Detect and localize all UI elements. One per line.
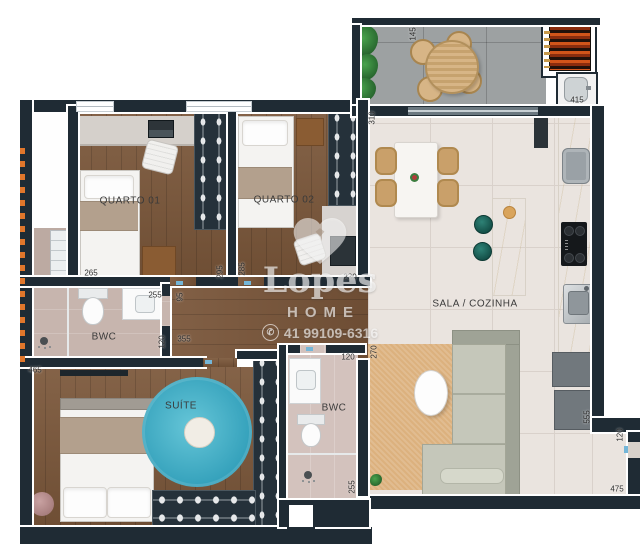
dim-label: 120 bbox=[616, 428, 625, 441]
balcony-round-table bbox=[425, 40, 479, 94]
heart-logo-icon bbox=[292, 218, 348, 264]
sofa-cushion bbox=[440, 468, 504, 484]
grill-niche bbox=[541, 18, 597, 78]
wall bbox=[237, 351, 285, 359]
door-hinge-mark bbox=[244, 281, 251, 285]
sink-basin bbox=[296, 370, 316, 390]
dim-label: 475 bbox=[610, 485, 623, 494]
room-label-suite: SUÍTE bbox=[165, 401, 197, 412]
room-label-quarto-01: QUARTO 01 bbox=[100, 196, 161, 207]
wall bbox=[20, 527, 372, 544]
door-opening bbox=[238, 277, 264, 286]
wall bbox=[279, 345, 286, 508]
table-flowers bbox=[410, 173, 419, 182]
dim-label: 295 bbox=[216, 265, 225, 278]
shower-glass bbox=[67, 286, 69, 358]
hydraulic-wall-hatch bbox=[20, 148, 25, 368]
quarto-02-dresser bbox=[296, 118, 324, 146]
dim-label: 270 bbox=[370, 345, 379, 358]
wall bbox=[358, 100, 368, 284]
coffee-table bbox=[414, 370, 448, 416]
dim-label: 555 bbox=[583, 410, 592, 423]
dim-label: 465 bbox=[28, 366, 41, 375]
island-stool bbox=[473, 242, 492, 261]
dim-label: 355 bbox=[177, 335, 190, 344]
service-area-floor-top bbox=[30, 106, 70, 230]
quarto-01-bed bbox=[80, 170, 140, 281]
door-hinge-mark bbox=[624, 446, 628, 453]
dim-label: 255 bbox=[148, 291, 161, 300]
built-in-oven bbox=[562, 148, 590, 184]
toilet-bowl bbox=[82, 297, 104, 325]
wall bbox=[20, 358, 205, 367]
dim-label: 120 bbox=[158, 335, 167, 348]
dim-label: 255 bbox=[348, 480, 357, 493]
watermark-phone: ✆ 41 99109-6316 bbox=[262, 324, 378, 341]
dim-label: 285 bbox=[238, 262, 247, 275]
suite-wardrobe-side bbox=[253, 353, 281, 529]
shower-head-icon bbox=[304, 471, 312, 479]
wall bbox=[352, 18, 600, 25]
grill-skewers bbox=[544, 24, 550, 68]
room-label-quarto-02: QUARTO 02 bbox=[254, 195, 315, 206]
wall bbox=[68, 106, 78, 284]
island-decor bbox=[503, 206, 516, 219]
wall bbox=[362, 496, 640, 509]
quarto-01-wardrobe bbox=[194, 112, 230, 230]
kitchen-sink bbox=[563, 284, 593, 324]
door-opening bbox=[170, 277, 196, 286]
dim-label: 310 bbox=[368, 111, 377, 124]
entry-door bbox=[628, 442, 640, 458]
watermark-tagline: HOME bbox=[280, 304, 360, 321]
door-hinge-mark bbox=[176, 281, 183, 285]
wall bbox=[592, 106, 604, 432]
door-hinge-mark bbox=[205, 360, 212, 364]
toilet-bowl bbox=[301, 423, 321, 447]
quarto-01-desk bbox=[78, 116, 194, 146]
watermark-brand: Lopes bbox=[263, 264, 377, 298]
room-label-sala-cozinha: SALA / COZINHA bbox=[432, 299, 517, 310]
dining-chair bbox=[437, 179, 459, 207]
quarto-02-bed bbox=[238, 116, 294, 228]
service-appliance bbox=[50, 230, 68, 278]
sofa-back bbox=[504, 344, 520, 496]
structural-column bbox=[287, 503, 315, 529]
dim-label: 95 bbox=[176, 293, 185, 302]
suite-shelf bbox=[60, 370, 128, 376]
quarto-02-wardrobe bbox=[328, 108, 362, 206]
bwc2-vanity bbox=[289, 358, 321, 404]
dim-label: 265 bbox=[84, 269, 97, 278]
watermark-phone-number: 41 99109-6316 bbox=[284, 325, 378, 341]
window bbox=[186, 101, 252, 112]
kitchen-tall-cabinet bbox=[534, 112, 548, 148]
door-opening bbox=[300, 345, 326, 353]
quarto-01-nightstand bbox=[142, 246, 176, 279]
island-stool bbox=[474, 215, 493, 234]
dining-chair bbox=[437, 147, 459, 175]
plant-pot bbox=[30, 492, 54, 516]
suite-wardrobe-bottom bbox=[152, 490, 256, 530]
wall bbox=[228, 112, 236, 278]
whatsapp-icon: ✆ bbox=[262, 324, 279, 341]
pouf bbox=[184, 417, 215, 448]
balcony-sliding-door bbox=[408, 107, 538, 115]
dim-label: 415 bbox=[570, 96, 583, 105]
window bbox=[76, 101, 114, 112]
floor-plan: QUARTO 01 QUARTO 02 BWC SUÍTE BWC SALA /… bbox=[0, 0, 640, 552]
wall bbox=[352, 25, 360, 106]
shower-head-icon bbox=[40, 337, 48, 345]
shower-glass bbox=[286, 453, 358, 455]
kitchen-appliance bbox=[552, 352, 594, 387]
grill-coals bbox=[549, 23, 591, 71]
wall bbox=[358, 360, 368, 496]
dim-label: 120 bbox=[341, 353, 354, 362]
room-label-bwc-2: BWC bbox=[322, 403, 347, 414]
room-label-bwc-1: BWC bbox=[92, 332, 117, 343]
suite-double-bed bbox=[60, 398, 154, 522]
door-opening bbox=[162, 296, 170, 326]
dim-label: 145 bbox=[409, 27, 418, 40]
dining-chair bbox=[375, 147, 397, 175]
laptop bbox=[148, 120, 174, 138]
cooktop bbox=[561, 222, 587, 266]
door-hinge-mark bbox=[306, 347, 313, 351]
dining-chair bbox=[375, 179, 397, 207]
